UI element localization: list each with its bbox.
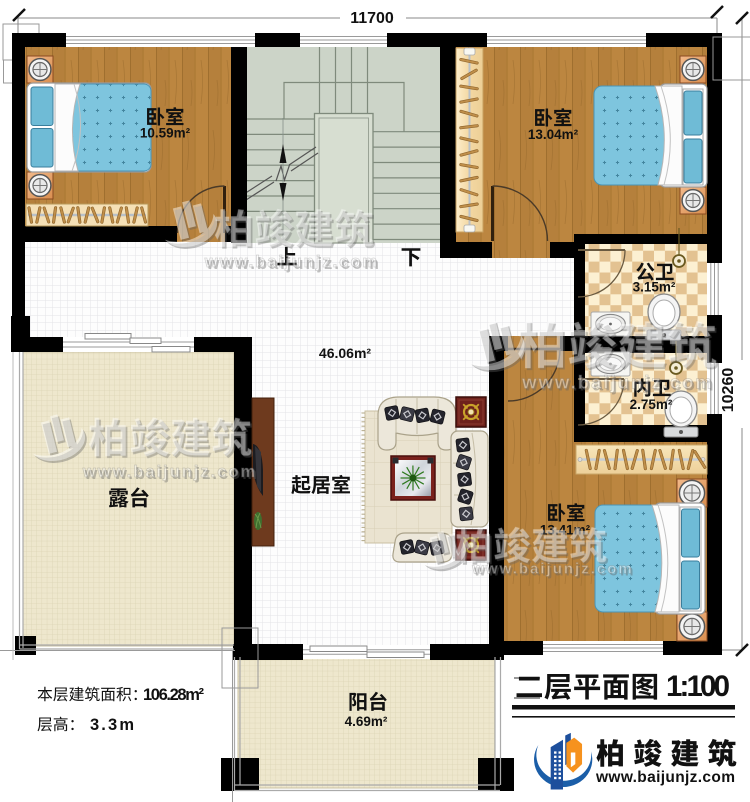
svg-text:1:100: 1:100 bbox=[666, 670, 730, 703]
svg-text:10.59m²: 10.59m² bbox=[140, 126, 191, 141]
svg-text:4.69m²: 4.69m² bbox=[345, 714, 388, 729]
svg-text:13.04m²: 13.04m² bbox=[528, 127, 579, 142]
svg-text:10260: 10260 bbox=[720, 368, 737, 413]
svg-text:www.baijunjz.com: www.baijunjz.com bbox=[595, 769, 735, 786]
svg-text:11700: 11700 bbox=[350, 10, 394, 27]
svg-text:106.28m²: 106.28m² bbox=[143, 686, 205, 704]
svg-text:www.baijunjz.com: www.baijunjz.com bbox=[471, 560, 633, 577]
svg-text:www.baijunjz.com: www.baijunjz.com bbox=[82, 463, 257, 481]
svg-text:3.3m: 3.3m bbox=[90, 716, 134, 734]
svg-text:2.75m²: 2.75m² bbox=[630, 397, 673, 412]
svg-text:www.baijunjz.com: www.baijunjz.com bbox=[204, 253, 379, 271]
svg-text:3.15m²: 3.15m² bbox=[633, 280, 676, 295]
svg-text:46.06m²: 46.06m² bbox=[319, 345, 371, 361]
svg-text:www.baijunjz.com: www.baijunjz.com bbox=[521, 372, 714, 393]
